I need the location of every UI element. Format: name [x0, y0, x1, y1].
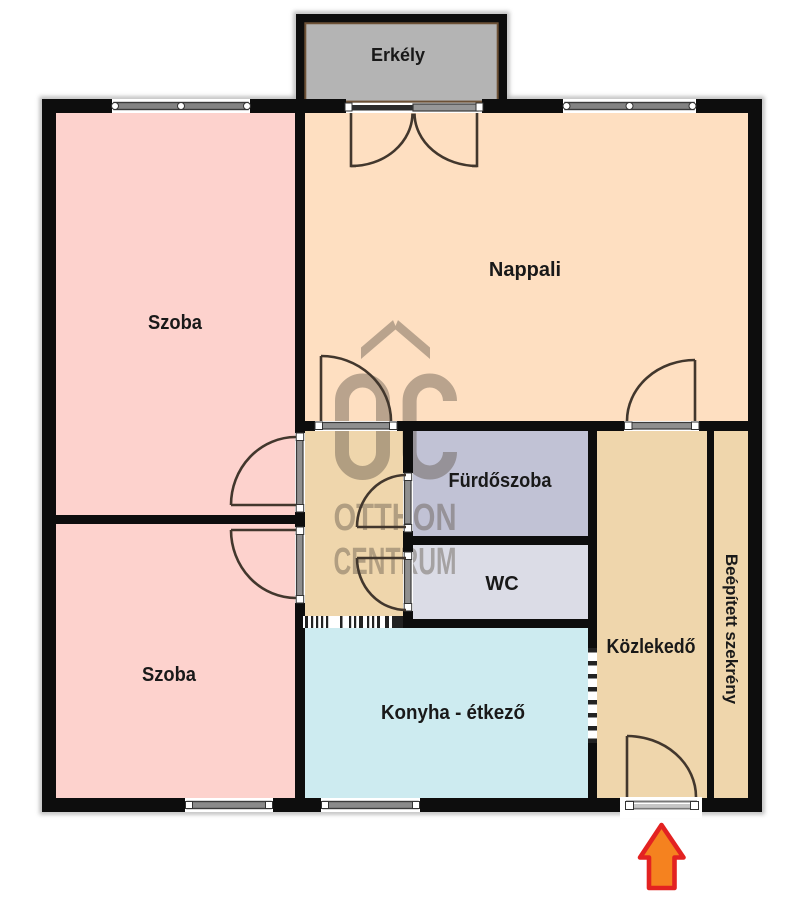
svg-text:Erkély: Erkély — [371, 45, 425, 65]
svg-text:Szoba: Szoba — [142, 664, 197, 686]
svg-text:Fürdőszoba: Fürdőszoba — [449, 470, 553, 492]
svg-text:CENTRUM: CENTRUM — [334, 541, 457, 583]
svg-text:OTTHON: OTTHON — [334, 497, 457, 539]
svg-text:Közlekedő: Közlekedő — [607, 636, 696, 658]
svg-text:Konyha - étkező: Konyha - étkező — [381, 702, 525, 724]
svg-text:Beépített szekrény: Beépített szekrény — [722, 554, 741, 705]
svg-text:Szoba: Szoba — [148, 312, 203, 334]
svg-text:Nappali: Nappali — [489, 259, 561, 281]
svg-text:WC: WC — [485, 573, 518, 595]
